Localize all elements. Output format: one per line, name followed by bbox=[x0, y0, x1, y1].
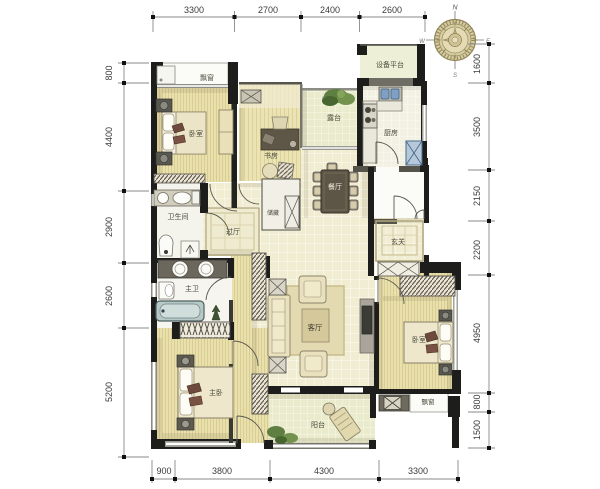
svg-text:2600: 2600 bbox=[382, 5, 402, 15]
svg-text:4950: 4950 bbox=[472, 323, 482, 343]
svg-text:1500: 1500 bbox=[472, 420, 482, 440]
svg-text:1600: 1600 bbox=[472, 54, 482, 74]
svg-text:设备平台: 设备平台 bbox=[376, 60, 404, 69]
svg-text:卧室: 卧室 bbox=[189, 129, 203, 138]
svg-text:2150: 2150 bbox=[472, 186, 482, 206]
svg-text:S: S bbox=[453, 73, 457, 79]
svg-text:3300: 3300 bbox=[184, 5, 204, 15]
svg-text:主卧: 主卧 bbox=[209, 388, 223, 397]
svg-text:餐厅: 餐厅 bbox=[328, 182, 342, 191]
svg-text:900: 900 bbox=[156, 466, 171, 476]
svg-text:800: 800 bbox=[104, 65, 114, 80]
svg-text:3300: 3300 bbox=[408, 466, 428, 476]
svg-text:储藏: 储藏 bbox=[267, 209, 279, 217]
svg-text:5200: 5200 bbox=[104, 382, 114, 402]
svg-text:厨房: 厨房 bbox=[384, 128, 398, 137]
svg-text:露台: 露台 bbox=[327, 113, 341, 122]
svg-text:4300: 4300 bbox=[314, 466, 334, 476]
svg-text:卧室: 卧室 bbox=[412, 335, 426, 344]
svg-text:2400: 2400 bbox=[320, 5, 340, 15]
svg-text:2700: 2700 bbox=[258, 5, 278, 15]
svg-text:卫生间: 卫生间 bbox=[168, 212, 189, 221]
svg-text:3500: 3500 bbox=[472, 117, 482, 137]
svg-text:W: W bbox=[419, 39, 426, 45]
svg-text:2600: 2600 bbox=[104, 286, 114, 306]
svg-text:2200: 2200 bbox=[472, 240, 482, 260]
svg-text:4400: 4400 bbox=[104, 127, 114, 147]
svg-text:过厅: 过厅 bbox=[226, 227, 240, 236]
svg-text:阳台: 阳台 bbox=[311, 420, 325, 429]
svg-text:玄关: 玄关 bbox=[391, 237, 405, 246]
svg-text:3800: 3800 bbox=[212, 466, 232, 476]
svg-text:飘窗: 飘窗 bbox=[200, 73, 214, 82]
svg-text:2900: 2900 bbox=[104, 217, 114, 237]
svg-text:主卫: 主卫 bbox=[185, 284, 199, 293]
svg-text:客厅: 客厅 bbox=[308, 322, 323, 332]
svg-text:飘窗: 飘窗 bbox=[422, 397, 435, 406]
svg-text:N: N bbox=[452, 5, 458, 12]
svg-text:书房: 书房 bbox=[264, 151, 278, 160]
svg-text:800: 800 bbox=[472, 394, 482, 409]
